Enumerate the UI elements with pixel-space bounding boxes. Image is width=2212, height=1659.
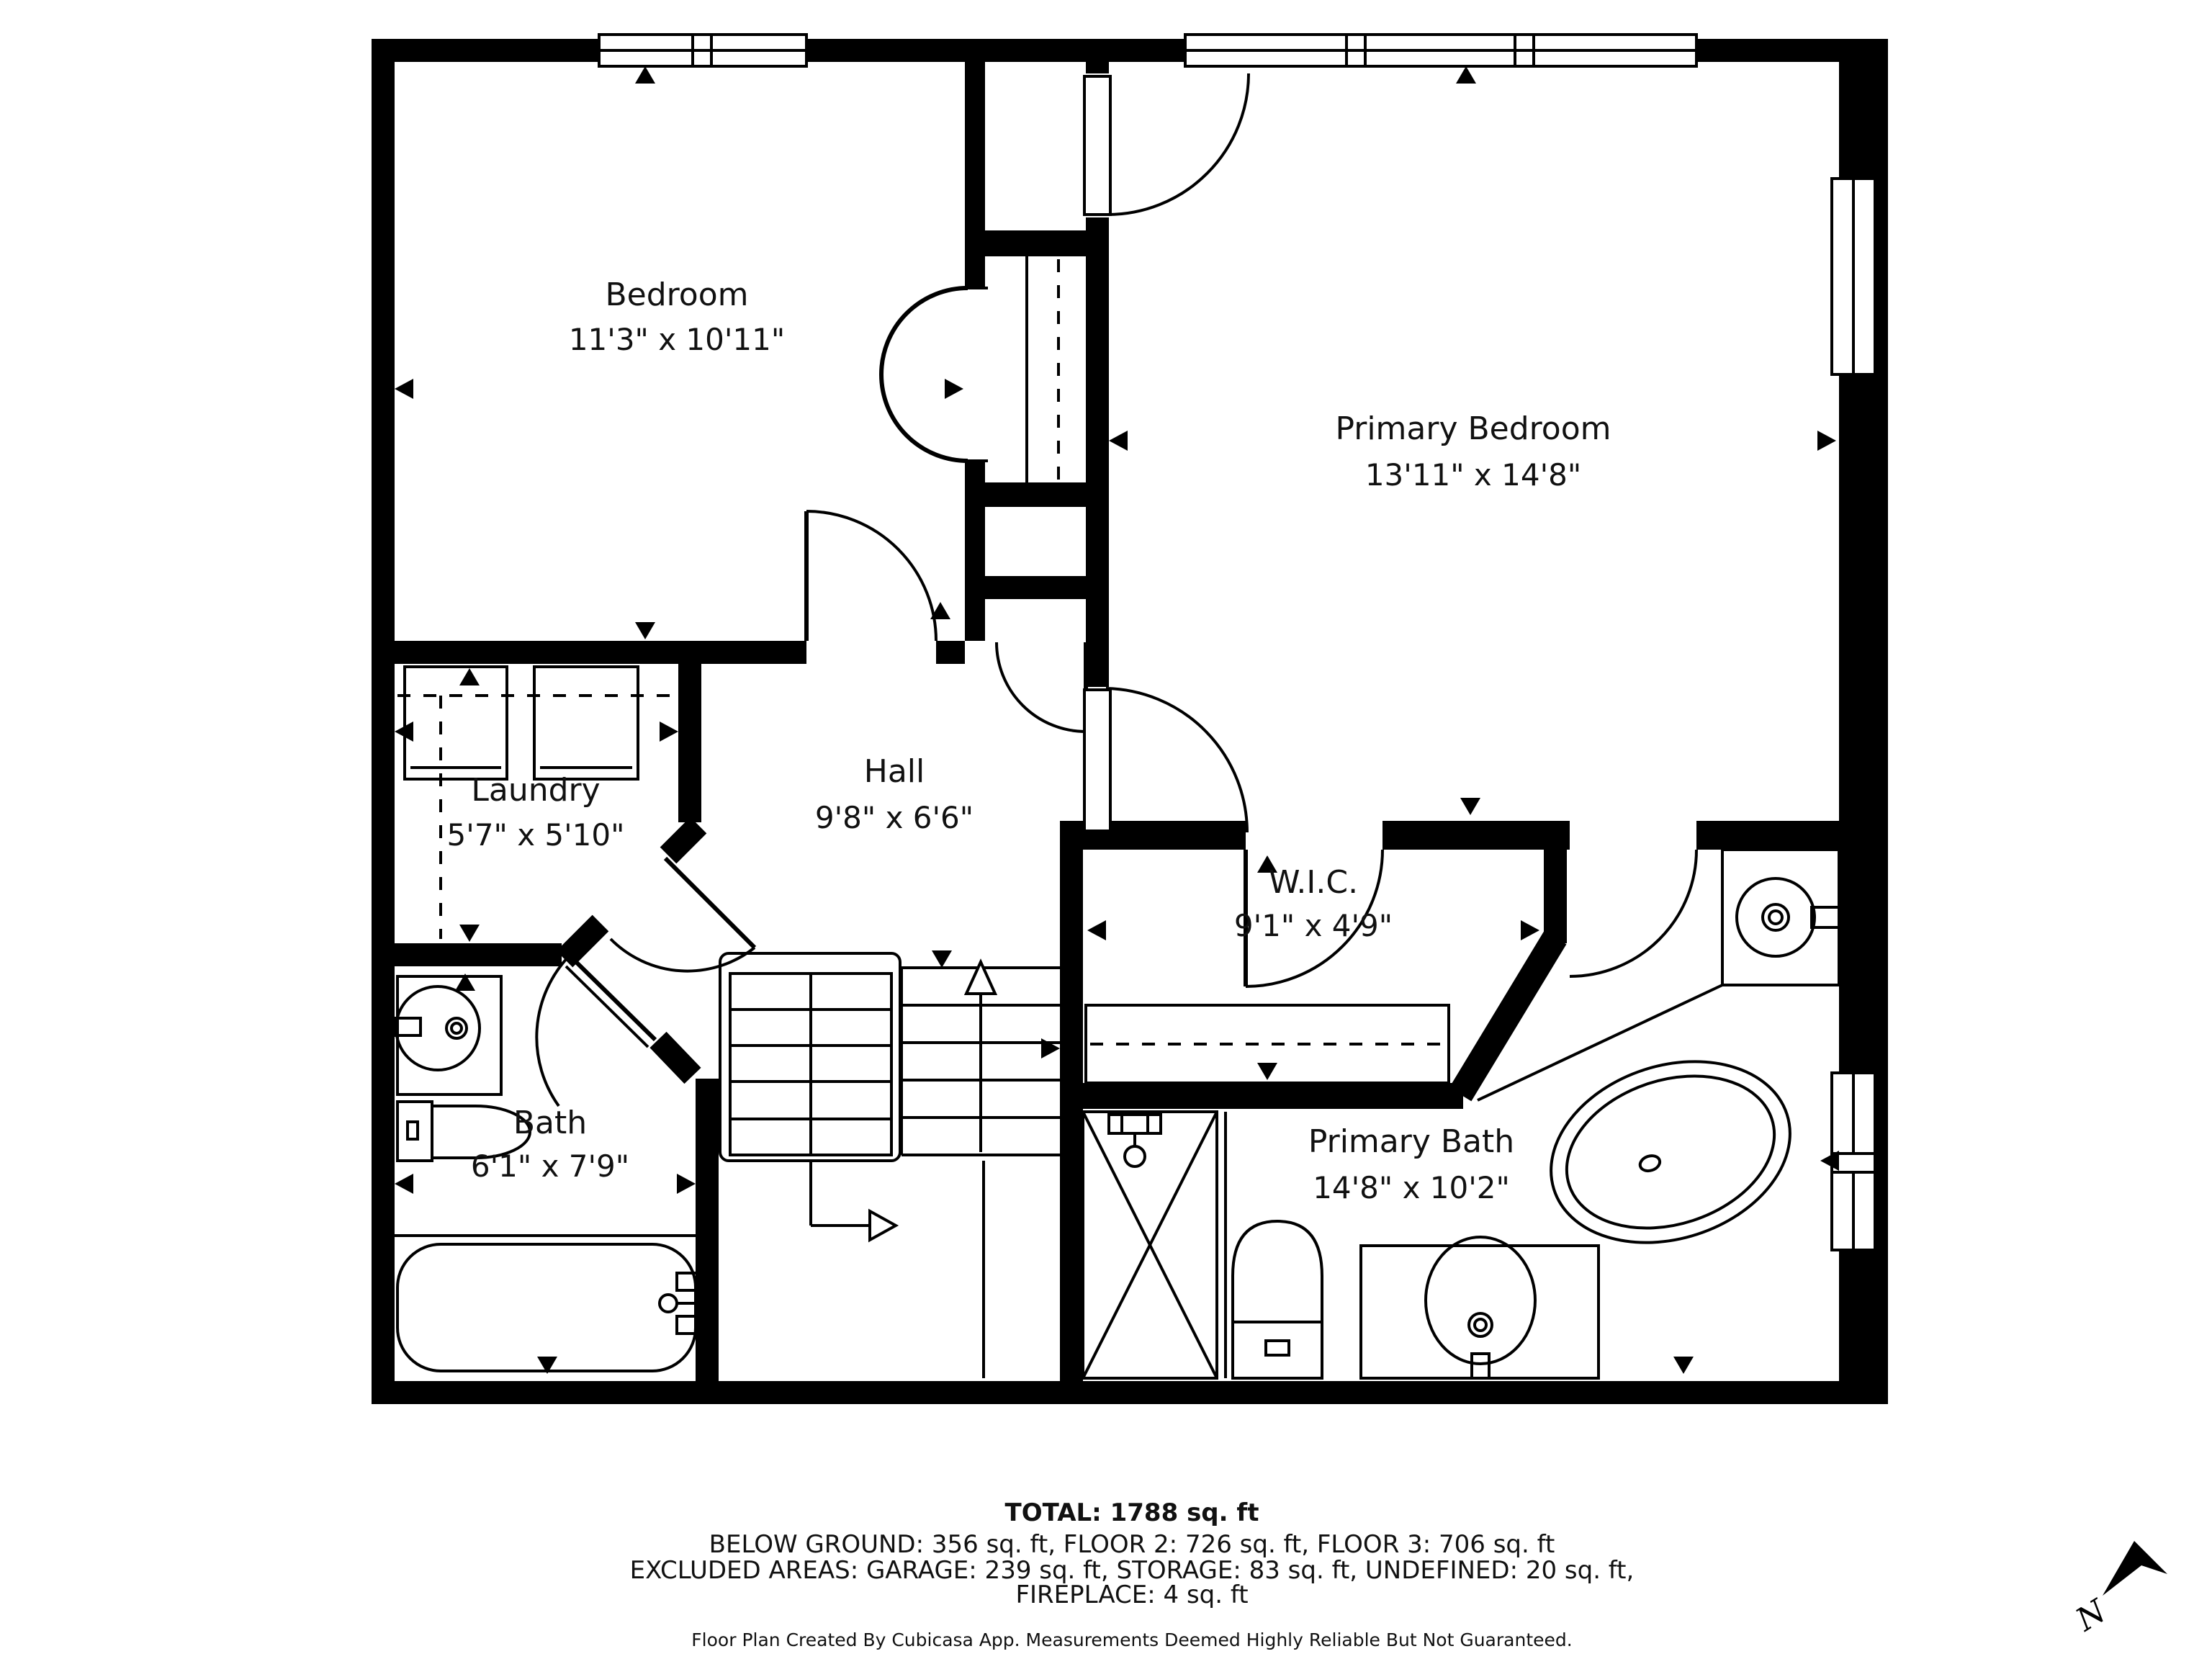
primary-vanity-right-icon: [1722, 850, 1840, 985]
hall-passage-door: [997, 642, 1086, 732]
primary-bedroom-side-window: [1832, 179, 1875, 374]
stairs-up-arrow: [966, 962, 995, 1152]
bath-vanity-sink-icon: [395, 976, 501, 1094]
primary-bedroom-door: [1084, 688, 1247, 832]
north-arrow-icon: N: [2069, 1541, 2167, 1639]
room-dims-bedroom: 11'3" x 10'11": [569, 322, 785, 357]
bath-door: [536, 956, 655, 1106]
room-dims-laundry: 5'7" x 5'10": [447, 817, 625, 853]
footer-disclaimer: Floor Plan Created By Cubicasa App. Meas…: [691, 1629, 1572, 1650]
footer-summary: TOTAL: 1788 sq. ft BELOW GROUND: 356 sq.…: [630, 1498, 1635, 1650]
room-dims-hall: 9'8" x 6'6": [815, 800, 974, 835]
room-dims-wic: 9'1" x 4'9": [1234, 908, 1393, 943]
dryer-icon: [534, 667, 638, 779]
freestanding-tub-icon: [1527, 1032, 1814, 1272]
room-label-hall: Hall: [864, 753, 925, 790]
floor-plan-svg: Bedroom 11'3" x 10'11" Primary Bedroom 1…: [0, 0, 2212, 1659]
room-labels: Bedroom 11'3" x 10'11" Primary Bedroom 1…: [447, 276, 1611, 1205]
north-arrow-label: N: [2069, 1592, 2114, 1639]
shower-head-icon: [1109, 1115, 1161, 1166]
room-label-bedroom: Bedroom: [605, 276, 748, 313]
footer-fireplace: FIREPLACE: 4 sq. ft: [1015, 1581, 1248, 1609]
footer-floors: BELOW GROUND: 356 sq. ft, FLOOR 2: 726 s…: [709, 1530, 1555, 1559]
bedroom-door: [806, 511, 936, 641]
room-dims-primary-bedroom: 13'11" x 14'8": [1365, 457, 1581, 493]
primary-vanity-left-icon: [1361, 1237, 1599, 1378]
room-label-bath: Bath: [513, 1105, 587, 1141]
primary-toilet-icon: [1233, 1221, 1322, 1378]
primary-bath-fixtures: [1083, 850, 1840, 1378]
bedroom-closet-inner: [1027, 256, 1058, 482]
bedroom-closet-bifold-doors: [881, 288, 988, 461]
floor-plan-page: Bedroom 11'3" x 10'11" Primary Bedroom 1…: [0, 0, 2212, 1659]
doors: [536, 73, 1696, 1106]
bedroom-window: [599, 35, 806, 66]
shower-icon: [1083, 1112, 1226, 1378]
stairs-down-arrow: [811, 1161, 896, 1240]
primary-bath-door: [1570, 850, 1696, 976]
footer-total: TOTAL: 1788 sq. ft: [1005, 1498, 1259, 1527]
primary-bedroom-window: [1185, 35, 1696, 66]
staircase: [720, 953, 1060, 1378]
exterior-walls: [372, 39, 1888, 1404]
room-label-laundry: Laundry: [471, 772, 600, 809]
room-label-wic: W.I.C.: [1269, 864, 1358, 901]
room-dims-bath: 6'1" x 7'9": [471, 1148, 629, 1184]
room-label-primary-bath: Primary Bath: [1308, 1123, 1514, 1160]
primary-closet-door: [1084, 73, 1249, 215]
bathtub-icon: [397, 1244, 697, 1371]
room-label-primary-bedroom: Primary Bedroom: [1335, 410, 1611, 447]
room-dims-primary-bath: 14'8" x 10'2": [1313, 1170, 1510, 1205]
washer-icon: [405, 667, 507, 779]
